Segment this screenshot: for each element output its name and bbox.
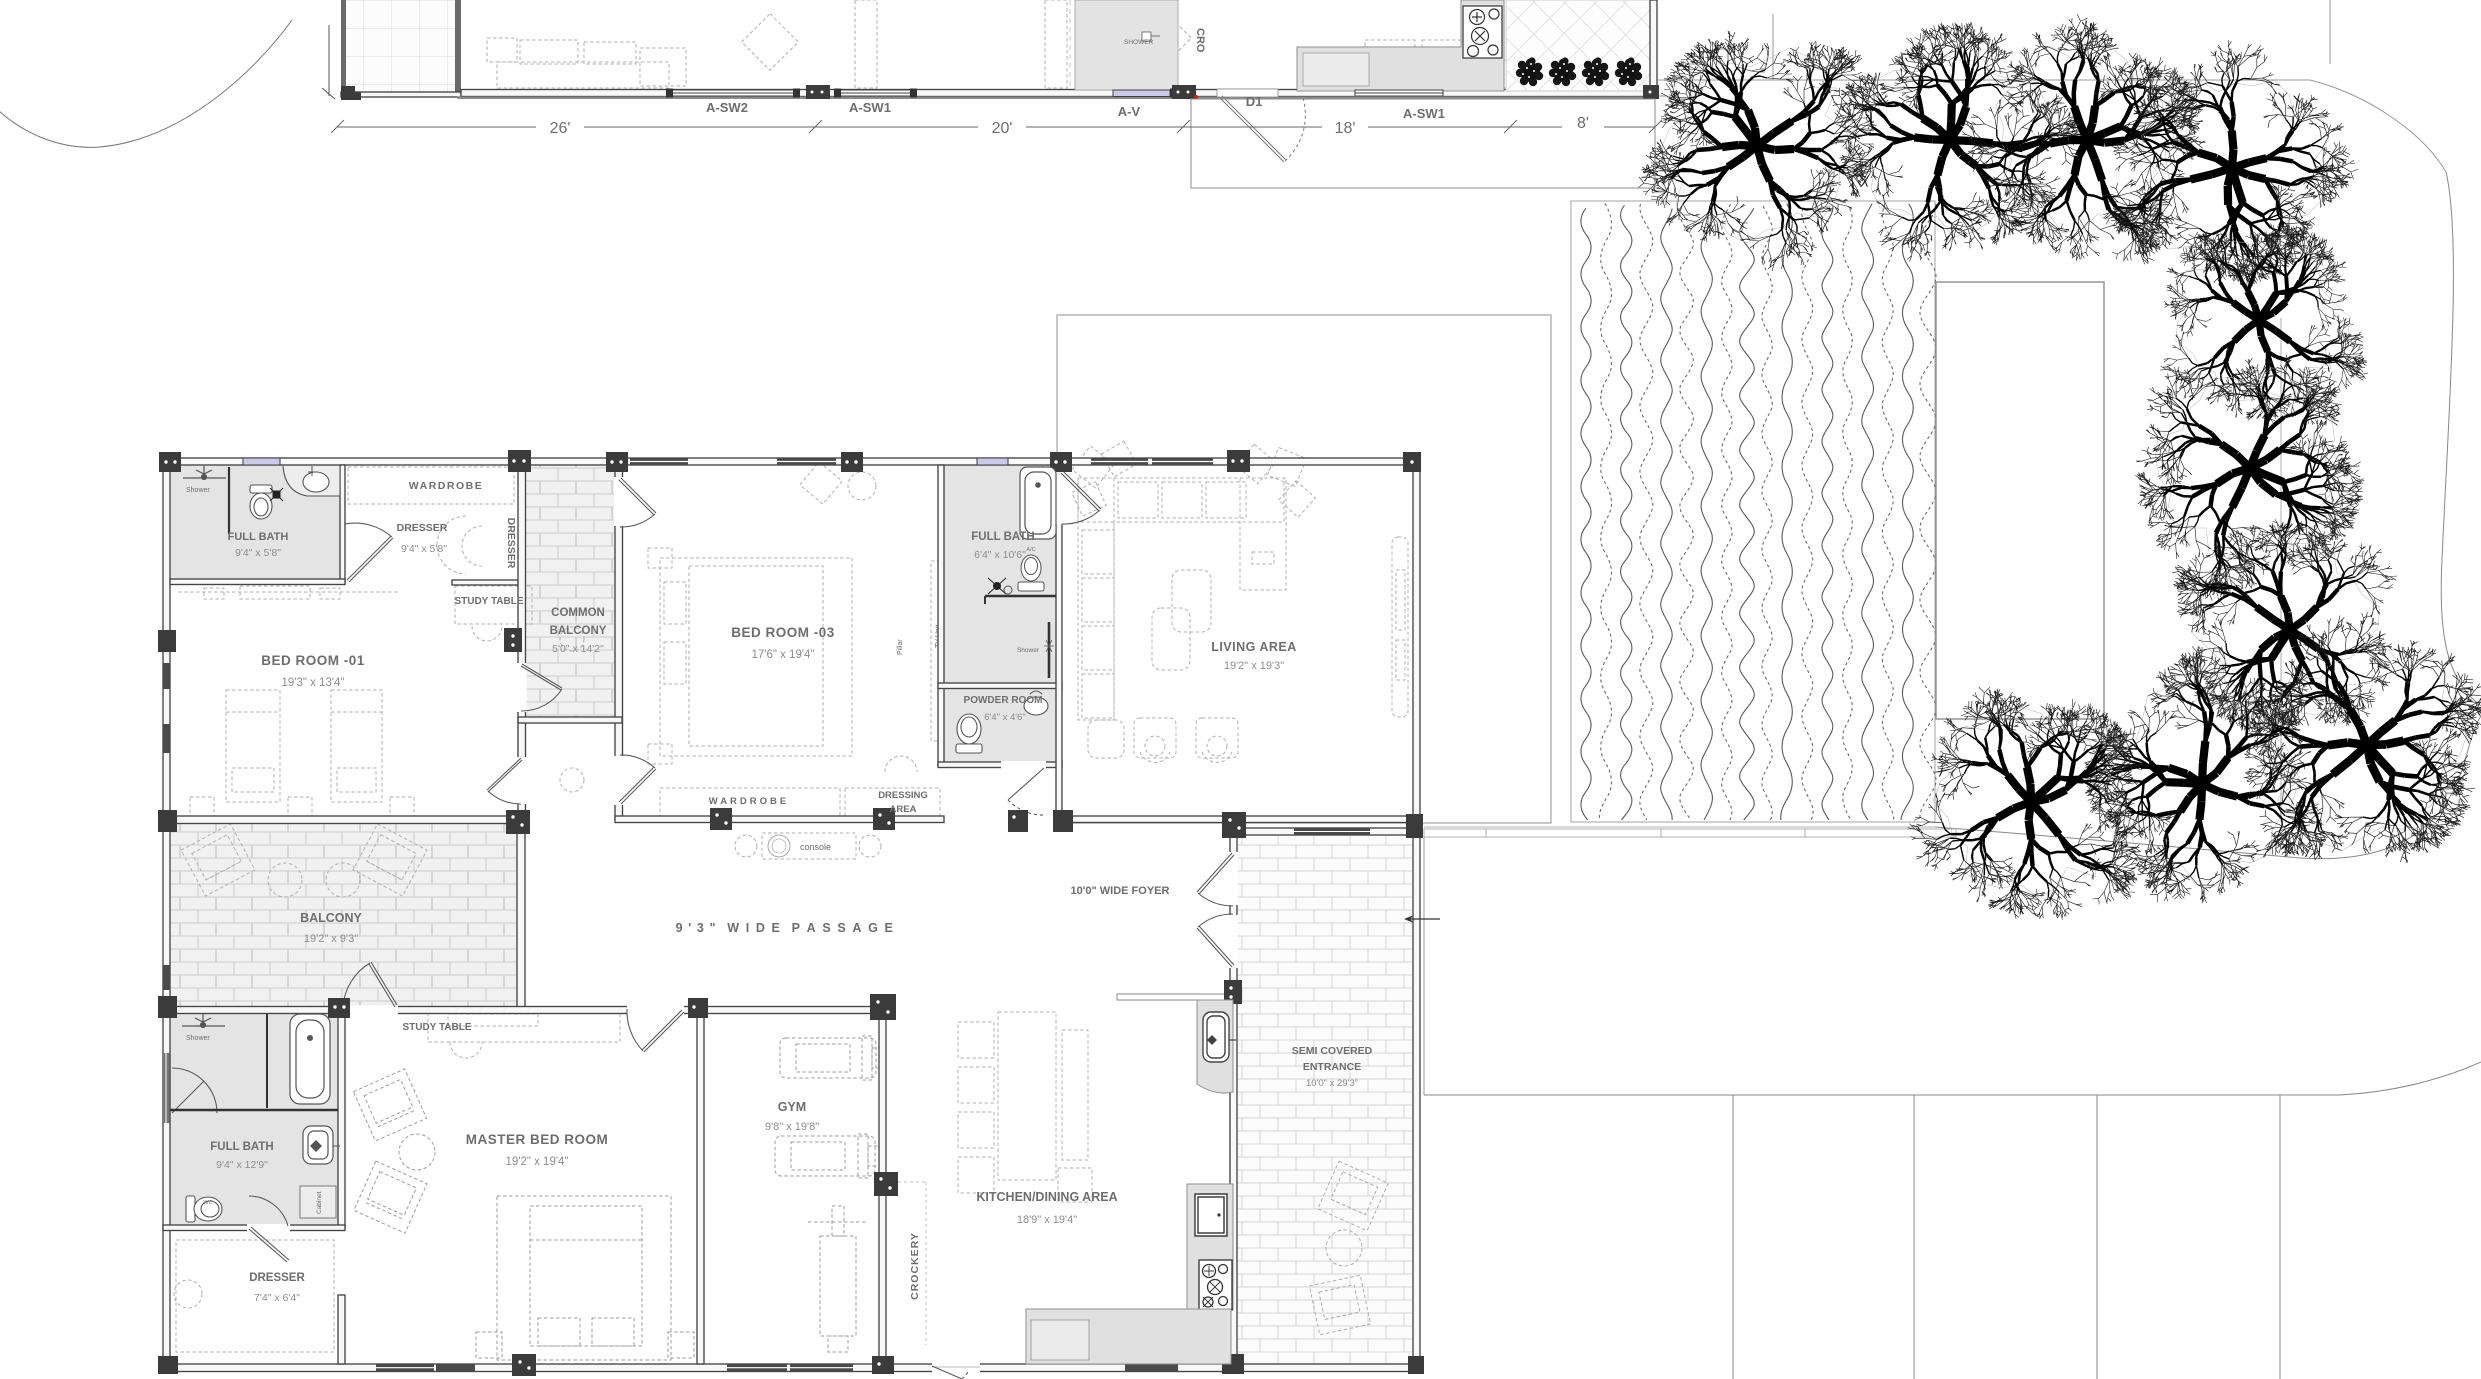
svg-text:9'4" x 5'8": 9'4" x 5'8" — [401, 543, 447, 555]
svg-text:SHOWER: SHOWER — [1124, 39, 1154, 46]
svg-text:COMMON: COMMON — [551, 607, 605, 619]
svg-text:17'6" x 19'4": 17'6" x 19'4" — [751, 649, 814, 661]
svg-text:10'0" WIDE FOYER: 10'0" WIDE FOYER — [1071, 885, 1170, 897]
svg-text:GYM: GYM — [778, 1100, 806, 1114]
svg-text:7'4" x 6'4": 7'4" x 6'4" — [254, 1292, 300, 1304]
svg-text:FULL BATH: FULL BATH — [210, 1141, 273, 1153]
svg-text:FULL BATH: FULL BATH — [971, 531, 1034, 543]
svg-text:Shower: Shower — [186, 487, 210, 494]
svg-text:10'0" x 29'3": 10'0" x 29'3" — [1306, 1078, 1358, 1089]
svg-text:DRESSER: DRESSER — [505, 518, 517, 569]
svg-text:19'2" x 19'4": 19'2" x 19'4" — [505, 1156, 568, 1168]
svg-text:A-SW1: A-SW1 — [1403, 106, 1445, 121]
svg-text:BED ROOM -03: BED ROOM -03 — [731, 625, 835, 640]
svg-text:KITCHEN/DINING AREA: KITCHEN/DINING AREA — [976, 1190, 1117, 1204]
svg-text:SEMI COVERED: SEMI COVERED — [1292, 1045, 1373, 1057]
svg-text:WARDROBE: WARDROBE — [709, 796, 789, 807]
svg-text:ENTRANCE: ENTRANCE — [1303, 1061, 1361, 1073]
svg-text:18'9" x 19'4": 18'9" x 19'4" — [1017, 1214, 1077, 1226]
svg-text:A-SW1: A-SW1 — [849, 100, 891, 115]
svg-text:LIVING AREA: LIVING AREA — [1211, 640, 1297, 654]
svg-text:19'3" x 13'4": 19'3" x 13'4" — [281, 677, 344, 689]
svg-text:Pillar: Pillar — [897, 639, 904, 655]
svg-text:WC: WC — [203, 1200, 212, 1206]
svg-text:BALCONY: BALCONY — [550, 625, 607, 637]
svg-text:DRESSING: DRESSING — [878, 790, 928, 801]
svg-text:D1: D1 — [1246, 94, 1263, 109]
svg-text:AREA: AREA — [890, 804, 917, 815]
svg-text:BALCONY: BALCONY — [300, 911, 362, 925]
svg-text:9'4" x 5'8": 9'4" x 5'8" — [235, 547, 281, 559]
svg-text:STUDY TABLE: STUDY TABLE — [454, 596, 523, 607]
svg-text:Shower: Shower — [186, 1035, 210, 1042]
svg-text:6'4" x 4'6": 6'4" x 4'6" — [984, 712, 1026, 723]
svg-text:26': 26' — [550, 120, 571, 137]
svg-text:FULL BATH: FULL BATH — [228, 531, 289, 543]
svg-text:A-SW2: A-SW2 — [706, 100, 748, 115]
svg-text:Cabinet: Cabinet — [316, 1191, 323, 1214]
svg-text:CRO: CRO — [1194, 28, 1206, 53]
svg-text:WARDROBE: WARDROBE — [409, 480, 483, 492]
svg-text:6'4" x 10'6": 6'4" x 10'6" — [974, 549, 1026, 561]
svg-text:18': 18' — [1335, 120, 1356, 137]
svg-text:8': 8' — [1577, 115, 1589, 132]
svg-text:19'2" x 9'3": 19'2" x 9'3" — [304, 933, 358, 945]
svg-text:MASTER BED ROOM: MASTER BED ROOM — [466, 1132, 609, 1147]
svg-text:9 ' 3 " W I D E P A S S A G: 9 ' 3 " W I D E P A S S A G E — [676, 921, 895, 935]
svg-text:9'8" x 19'8": 9'8" x 19'8" — [765, 1121, 819, 1133]
svg-text:9'4" x 12'9": 9'4" x 12'9" — [216, 1159, 268, 1171]
svg-text:STUDY TABLE: STUDY TABLE — [402, 1022, 471, 1033]
svg-text:CROCKERY: CROCKERY — [909, 1232, 921, 1300]
svg-text:BED ROOM -01: BED ROOM -01 — [261, 653, 365, 668]
svg-text:DRESSER: DRESSER — [249, 1272, 305, 1284]
svg-text:5'0" x 14'2": 5'0" x 14'2" — [552, 643, 604, 655]
svg-text:A/C: A/C — [1026, 547, 1035, 553]
svg-text:A-V: A-V — [1118, 104, 1141, 119]
svg-text:Shower: Shower — [1017, 647, 1040, 654]
svg-text:DRESSER: DRESSER — [397, 522, 448, 534]
svg-text:POWDER ROOM: POWDER ROOM — [964, 695, 1043, 706]
svg-text:19'2" x 19'3": 19'2" x 19'3" — [1224, 660, 1284, 672]
svg-text:20': 20' — [992, 120, 1013, 137]
svg-text:console: console — [800, 842, 831, 852]
